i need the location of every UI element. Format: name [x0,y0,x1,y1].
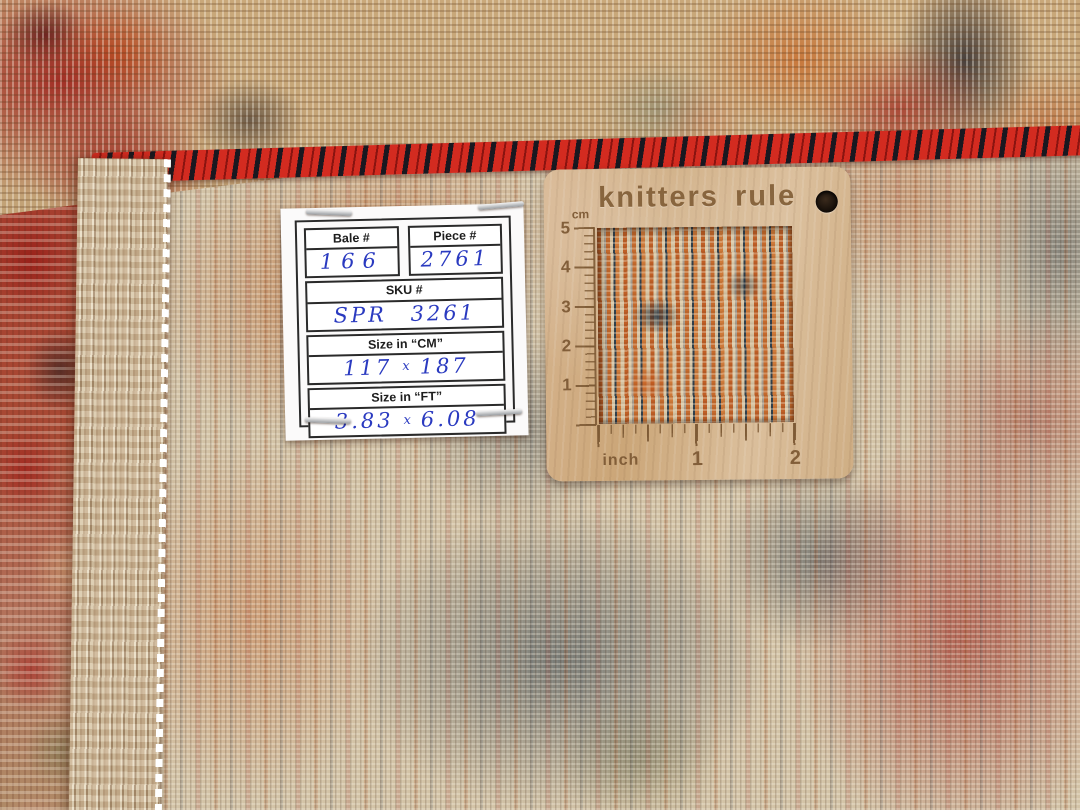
piece-value: 2761 [410,246,501,274]
cm-scale-minor-ticks [584,227,596,425]
cm-tick-5: 5 [550,218,570,238]
rug-back-photo: Bale # 166 Piece # 2761 SKU # SPR 3261 S… [0,0,1080,810]
bale-value: 166 [306,248,397,276]
size-ft-separator: x [403,414,411,428]
size-label-card: Bale # 166 Piece # 2761 SKU # SPR 3261 S… [280,203,528,440]
sku-box: SKU # SPR 3261 [305,277,504,332]
size-cm-height: 187 [419,354,469,378]
sku-value: SPR 3261 [308,299,503,329]
label-row-bale-piece: Bale # 166 Piece # 2761 [304,224,503,279]
size-cm-box: Size in “CM” 117 x 187 [306,330,505,385]
cm-tick-3: 3 [551,297,571,317]
cm-tick-2: 2 [551,336,571,356]
piece-box: Piece # 2761 [407,224,503,276]
rug-fringe [69,158,168,810]
cm-tick-1: 1 [552,375,572,395]
size-cm-value: 117 x 187 [309,353,504,383]
cm-scale-label: cm [572,207,589,221]
cm-tick-4: 4 [550,257,570,277]
label-border: Bale # 166 Piece # 2761 SKU # SPR 3261 S… [295,216,516,428]
ruler-window-weave [597,226,794,424]
size-cm-separator: x [402,360,410,374]
knitters-rule-tool: knitters rule cm 5 4 3 2 1 inch 1 2 [543,166,853,481]
inch-tick-2: 2 [785,447,805,470]
ruler-brand-text: knitters rule [544,179,851,215]
inch-scale-label: inch [602,452,639,470]
inch-tick-1: 1 [687,448,707,471]
size-ft-height: 6.08 [421,408,480,432]
size-cm-width: 117 [343,356,393,380]
ruler-hanging-hole [816,191,838,213]
inch-scale-inch-ticks [597,423,796,447]
bale-header: Bale # [306,228,397,250]
bale-box: Bale # 166 [304,226,400,278]
piece-header: Piece # [409,226,500,248]
